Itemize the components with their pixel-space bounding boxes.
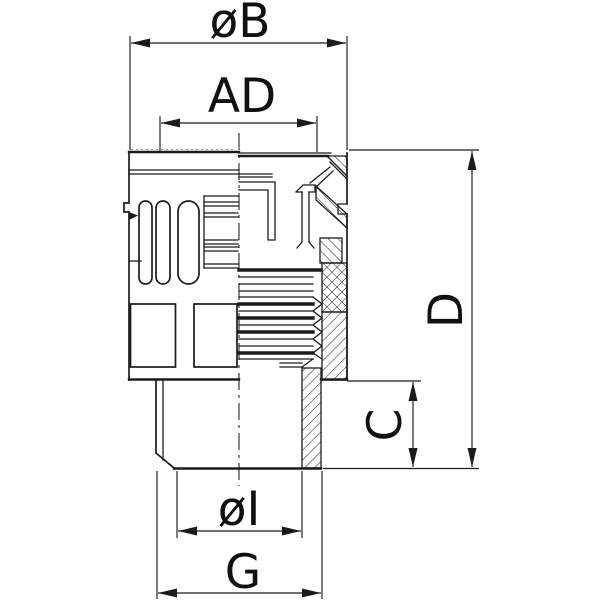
dimension-label-d: D [419, 292, 474, 328]
cable-gland-drawing: øB AD D C øI [0, 0, 600, 600]
stem-right-section [302, 368, 321, 468]
dimension-label-oi: øI [218, 482, 261, 537]
dimension-oi: øI [177, 471, 302, 538]
cage-block-exterior [204, 196, 238, 268]
technical-drawing-page: øB AD D C øI [0, 0, 600, 600]
dimension-c: C [323, 381, 479, 469]
latch-tooth [129, 212, 138, 220]
dimension-label-ad: AD [208, 69, 276, 124]
dimension-label-g: G [225, 545, 261, 600]
dimension-label-ob: øB [210, 0, 271, 49]
clamping-claws-section [239, 167, 333, 248]
body-left-exterior-half [124, 150, 239, 469]
lower-panels [131, 304, 238, 367]
internal-thread-section [239, 270, 322, 367]
oval-slots [139, 201, 199, 284]
body-right-section-half [239, 153, 347, 468]
outer-wall-hatched [316, 186, 347, 380]
dimension-label-c: C [358, 409, 413, 442]
stem-left-exterior [156, 380, 174, 468]
